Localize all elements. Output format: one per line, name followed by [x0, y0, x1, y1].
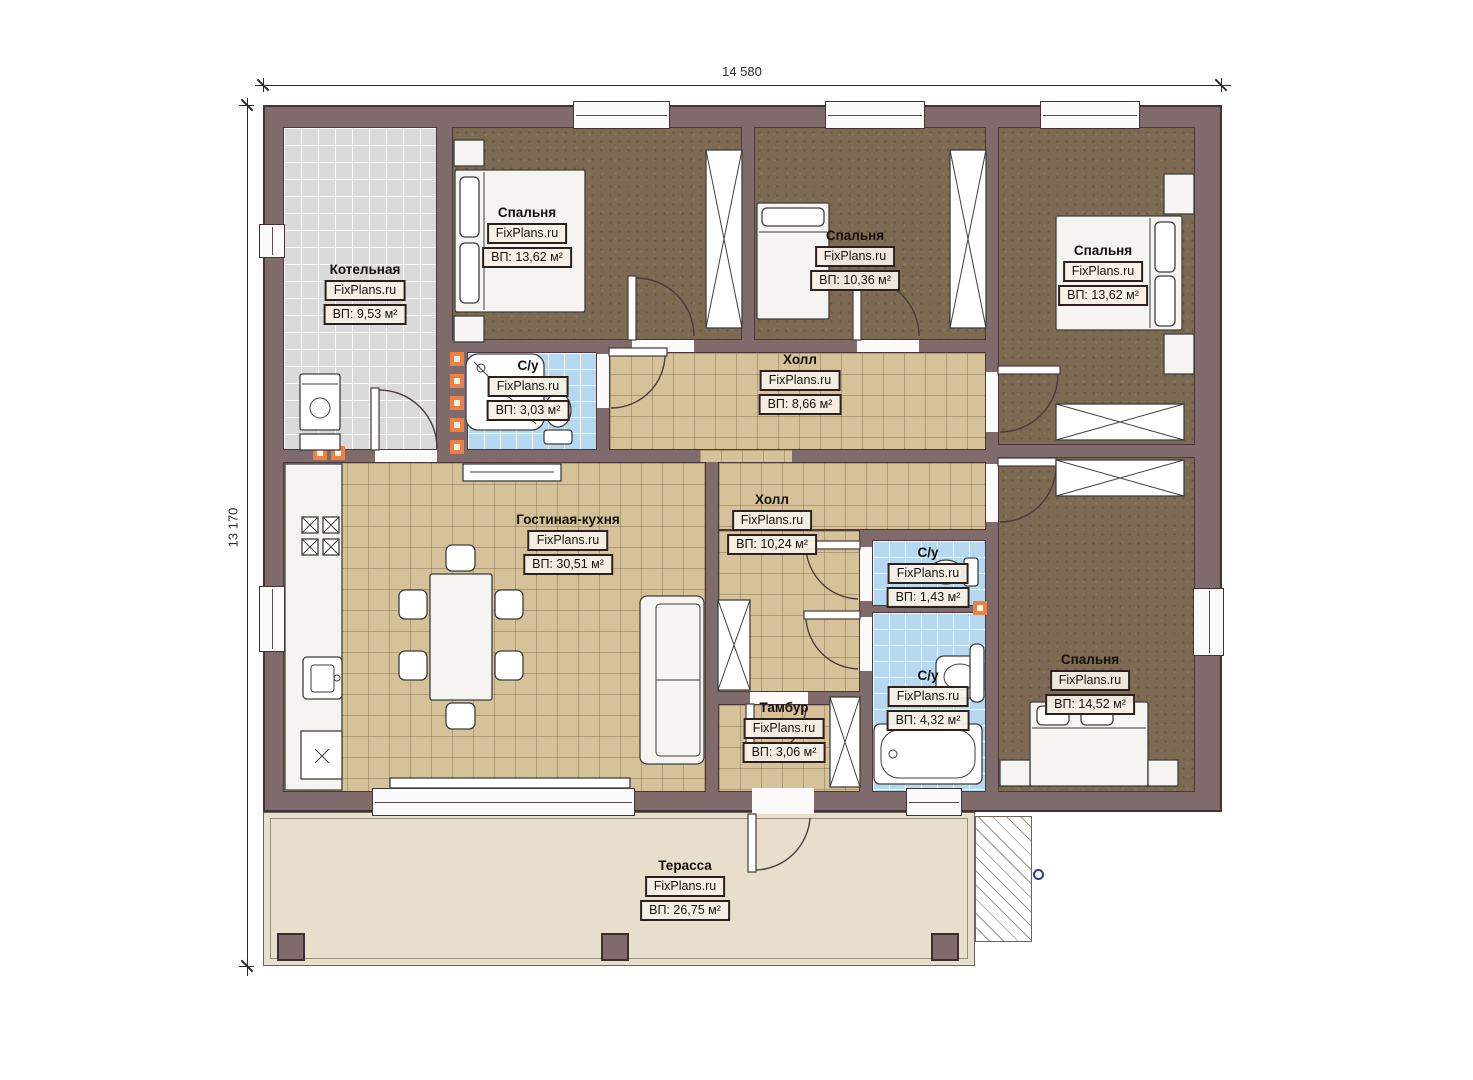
dimension-top-label: 14 580	[692, 64, 792, 79]
room-label-boiler: Котельная FixPlans.ru ВП: 9,53 м²	[324, 262, 407, 325]
room-name: Спальня	[498, 205, 556, 220]
vent-marker	[450, 418, 464, 432]
vent-marker	[450, 352, 464, 366]
window	[825, 101, 925, 129]
room-label-bath1: С/у FixPlans.ru ВП: 3,03 м²	[487, 358, 570, 421]
room-floor-living	[283, 462, 706, 792]
terrace-column	[601, 933, 629, 961]
room-area: ВП: 4,32 м²	[887, 710, 970, 731]
vent-marker	[331, 446, 345, 460]
room-area: ВП: 10,36 м²	[810, 270, 900, 291]
watermark: FixPlans.ru	[732, 510, 813, 531]
room-name: Терасса	[658, 858, 712, 873]
door-opening	[860, 547, 872, 601]
watermark: FixPlans.ru	[888, 686, 969, 707]
dimension-line-top	[255, 85, 1231, 86]
door-opening	[375, 450, 437, 462]
room-area: ВП: 10,24 м²	[727, 534, 817, 555]
room-area: ВП: 1,43 м²	[887, 587, 970, 608]
window	[1193, 588, 1224, 656]
window	[573, 101, 670, 129]
room-name: Тамбур	[760, 700, 809, 715]
watermark: FixPlans.ru	[488, 376, 569, 397]
room-name: Спальня	[1061, 652, 1119, 667]
watermark: FixPlans.ru	[645, 876, 726, 897]
watermark: FixPlans.ru	[888, 563, 969, 584]
window	[259, 224, 285, 258]
room-label-bath2: С/у FixPlans.ru ВП: 1,43 м²	[887, 545, 970, 608]
room-floor-bedroom4	[998, 457, 1195, 792]
room-area: ВП: 30,51 м²	[523, 554, 613, 575]
door-opening	[986, 464, 998, 522]
room-label-bedroom2: Спальня FixPlans.ru ВП: 10,36 м²	[810, 228, 900, 291]
room-name: Спальня	[1074, 243, 1132, 258]
room-label-bedroom1: Спальня FixPlans.ru ВП: 13,62 м²	[482, 205, 572, 268]
watermark: FixPlans.ru	[325, 280, 406, 301]
watermark: FixPlans.ru	[744, 718, 825, 739]
room-area: ВП: 13,62 м²	[482, 247, 572, 268]
room-label-terrace: Терасса FixPlans.ru ВП: 26,75 м²	[640, 858, 730, 921]
terrace-column	[931, 933, 959, 961]
window	[259, 586, 285, 652]
door-opening	[632, 340, 694, 352]
room-name: Холл	[783, 352, 817, 367]
room-name: Спальня	[826, 228, 884, 243]
room-area: ВП: 13,62 м²	[1058, 285, 1148, 306]
room-name: Холл	[755, 492, 789, 507]
room-area: ВП: 9,53 м²	[324, 304, 407, 325]
room-name: Гостиная-кухня	[516, 512, 619, 527]
window	[1040, 101, 1140, 129]
floor-plan: 14 580 13 170	[0, 0, 1473, 1080]
room-name: С/у	[917, 668, 938, 683]
door-opening	[860, 617, 872, 671]
room-area: ВП: 3,06 м²	[743, 742, 826, 763]
dimension-line-left	[247, 98, 248, 976]
room-area: ВП: 26,75 м²	[640, 900, 730, 921]
dimension-left-label: 13 170	[226, 493, 241, 563]
entrance-steps	[975, 816, 1032, 942]
vent-marker	[973, 601, 987, 615]
vent-marker	[450, 440, 464, 454]
entrance-door-opening	[752, 788, 814, 814]
watermark: FixPlans.ru	[760, 370, 841, 391]
door-opening	[857, 340, 919, 352]
vent-marker	[313, 446, 327, 460]
terrace-column	[277, 933, 305, 961]
watermark: FixPlans.ru	[815, 246, 896, 267]
room-label-bath3: С/у FixPlans.ru ВП: 4,32 м²	[887, 668, 970, 731]
window	[906, 788, 962, 816]
vent-marker	[450, 396, 464, 410]
room-area: ВП: 3,03 м²	[487, 400, 570, 421]
vent-marker	[450, 374, 464, 388]
watermark: FixPlans.ru	[528, 530, 609, 551]
room-label-vestibule: Тамбур FixPlans.ru ВП: 3,06 м²	[743, 700, 826, 763]
room-label-hall2: Холл FixPlans.ru ВП: 10,24 м²	[727, 492, 817, 555]
room-area: ВП: 14,52 м²	[1045, 694, 1135, 715]
room-label-hall1: Холл FixPlans.ru ВП: 8,66 м²	[759, 352, 842, 415]
room-label-bedroom4: Спальня FixPlans.ru ВП: 14,52 м²	[1045, 652, 1135, 715]
terrace-marker	[1033, 869, 1044, 880]
watermark: FixPlans.ru	[1050, 670, 1131, 691]
room-name: С/у	[517, 358, 538, 373]
room-name: Котельная	[330, 262, 401, 277]
room-area: ВП: 8,66 м²	[759, 394, 842, 415]
hall-archway	[700, 450, 792, 462]
room-label-bedroom3: Спальня FixPlans.ru ВП: 13,62 м²	[1058, 243, 1148, 306]
watermark: FixPlans.ru	[487, 223, 568, 244]
room-name: С/у	[917, 545, 938, 560]
door-opening	[597, 354, 609, 408]
window	[372, 788, 635, 816]
room-label-living: Гостиная-кухня FixPlans.ru ВП: 30,51 м²	[516, 512, 619, 575]
watermark: FixPlans.ru	[1063, 261, 1144, 282]
door-opening	[986, 372, 998, 432]
